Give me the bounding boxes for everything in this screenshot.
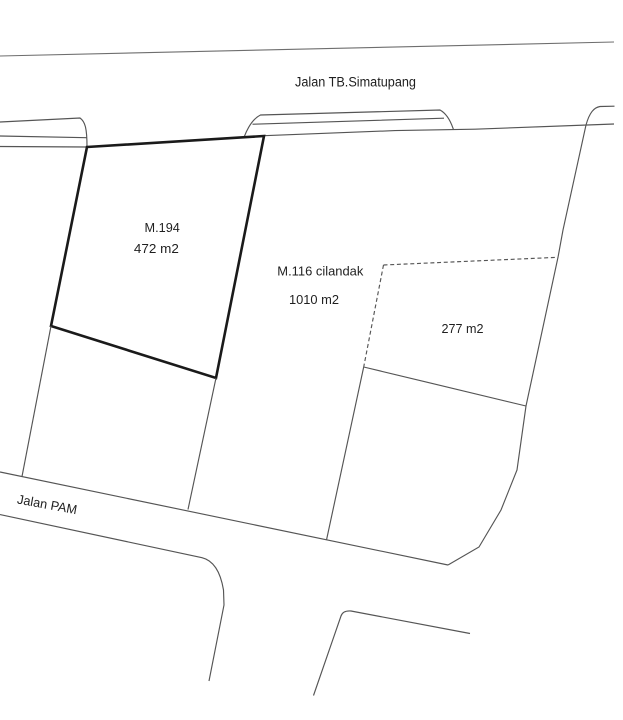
svg-text:277 m2: 277 m2 xyxy=(442,321,484,336)
svg-text:Jalan TB.Simatupang: Jalan TB.Simatupang xyxy=(295,74,416,89)
svg-text:1010 m2: 1010 m2 xyxy=(289,292,339,307)
svg-text:M.116 cilandak: M.116 cilandak xyxy=(277,264,363,279)
svg-text:M.194: M.194 xyxy=(145,220,180,235)
svg-text:472 m2: 472 m2 xyxy=(134,241,179,256)
